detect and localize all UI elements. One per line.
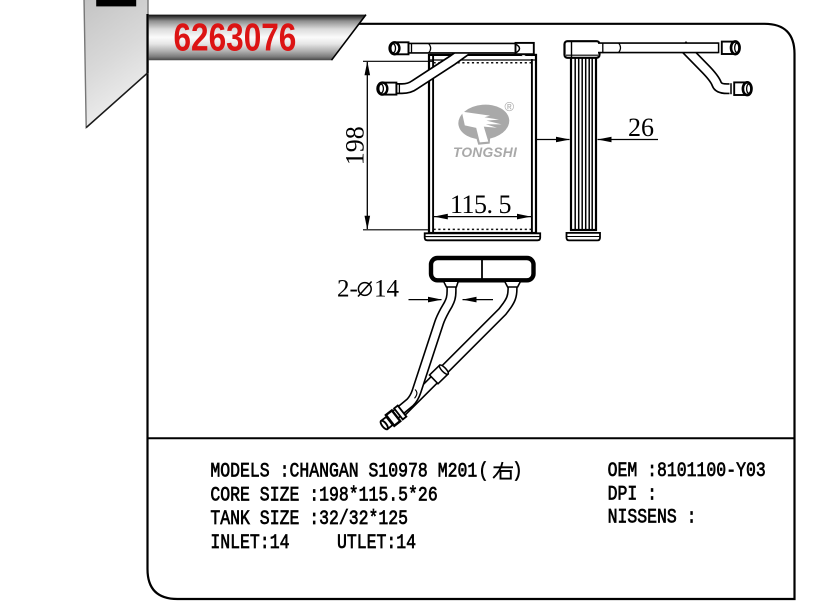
svg-text:®: ® [505,99,515,114]
svg-text:14: 14 [374,276,400,303]
svg-text:(: ( [479,459,489,483]
svg-text:26: 26 [628,113,654,142]
svg-text:): ) [513,459,523,483]
svg-text:NISSENS :: NISSENS : [608,505,697,529]
svg-text:TONGSHI: TONGSHI [453,145,518,160]
svg-text:6263076: 6263076 [174,17,297,60]
svg-text:2-: 2- [337,276,358,303]
svg-text:115. 5: 115. 5 [450,190,511,219]
svg-text:MODELS :CHANGAN S10978 M201: MODELS :CHANGAN S10978 M201 [210,459,477,483]
svg-text:DPI :: DPI : [608,482,657,506]
svg-text:CORE SIZE :198*115.5*26: CORE SIZE :198*115.5*26 [210,483,437,507]
svg-text:OEM :8101100-Y03: OEM :8101100-Y03 [608,459,766,483]
svg-text:198: 198 [341,126,370,165]
svg-text:TANK SIZE :32/32*125: TANK SIZE :32/32*125 [210,507,408,531]
svg-text:UTLET:14: UTLET:14 [337,530,416,554]
svg-text:INLET:14: INLET:14 [210,530,289,554]
